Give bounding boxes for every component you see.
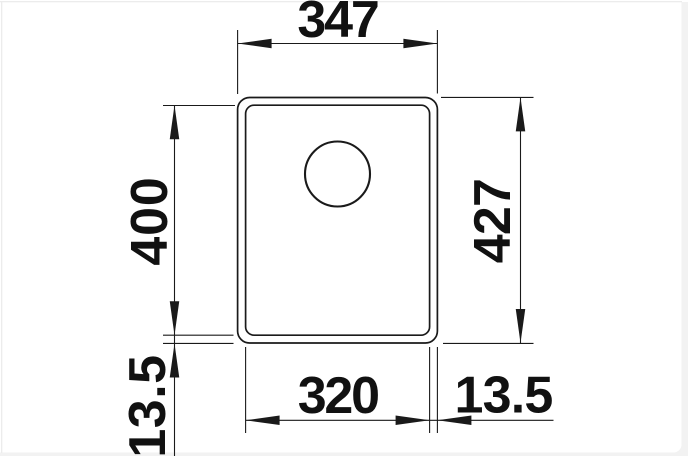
svg-text:13.5: 13.5 [119,354,177,456]
svg-text:347: 347 [297,0,377,49]
svg-text:320: 320 [298,367,378,425]
svg-text:427: 427 [464,179,522,263]
svg-text:400: 400 [121,176,179,265]
svg-text:13.5: 13.5 [454,367,552,425]
